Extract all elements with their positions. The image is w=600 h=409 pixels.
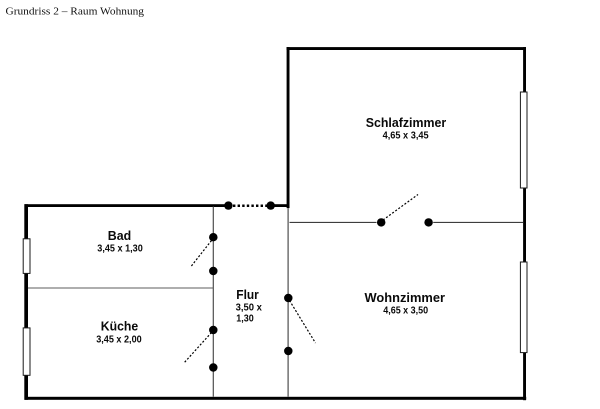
- svg-text:Bad: Bad: [108, 228, 131, 243]
- svg-text:4,65 x 3,50: 4,65 x 3,50: [383, 306, 428, 317]
- svg-text:Schlafzimmer: Schlafzimmer: [366, 115, 447, 130]
- svg-text:Küche: Küche: [101, 319, 138, 334]
- svg-text:3,45 x 2,00: 3,45 x 2,00: [96, 335, 142, 346]
- svg-text:Flur: Flur: [236, 287, 258, 302]
- svg-text:3,45 x 1,30: 3,45 x 1,30: [97, 244, 143, 255]
- svg-text:4,65 x 3,45: 4,65 x 3,45: [383, 131, 429, 142]
- svg-text:Wohnzimmer: Wohnzimmer: [365, 290, 446, 305]
- svg-text:3,50 x: 3,50 x: [236, 302, 263, 313]
- svg-text:Grundriss 2 – Raum Wohnung: Grundriss 2 – Raum Wohnung: [6, 5, 145, 17]
- svg-text:1,30: 1,30: [236, 314, 254, 325]
